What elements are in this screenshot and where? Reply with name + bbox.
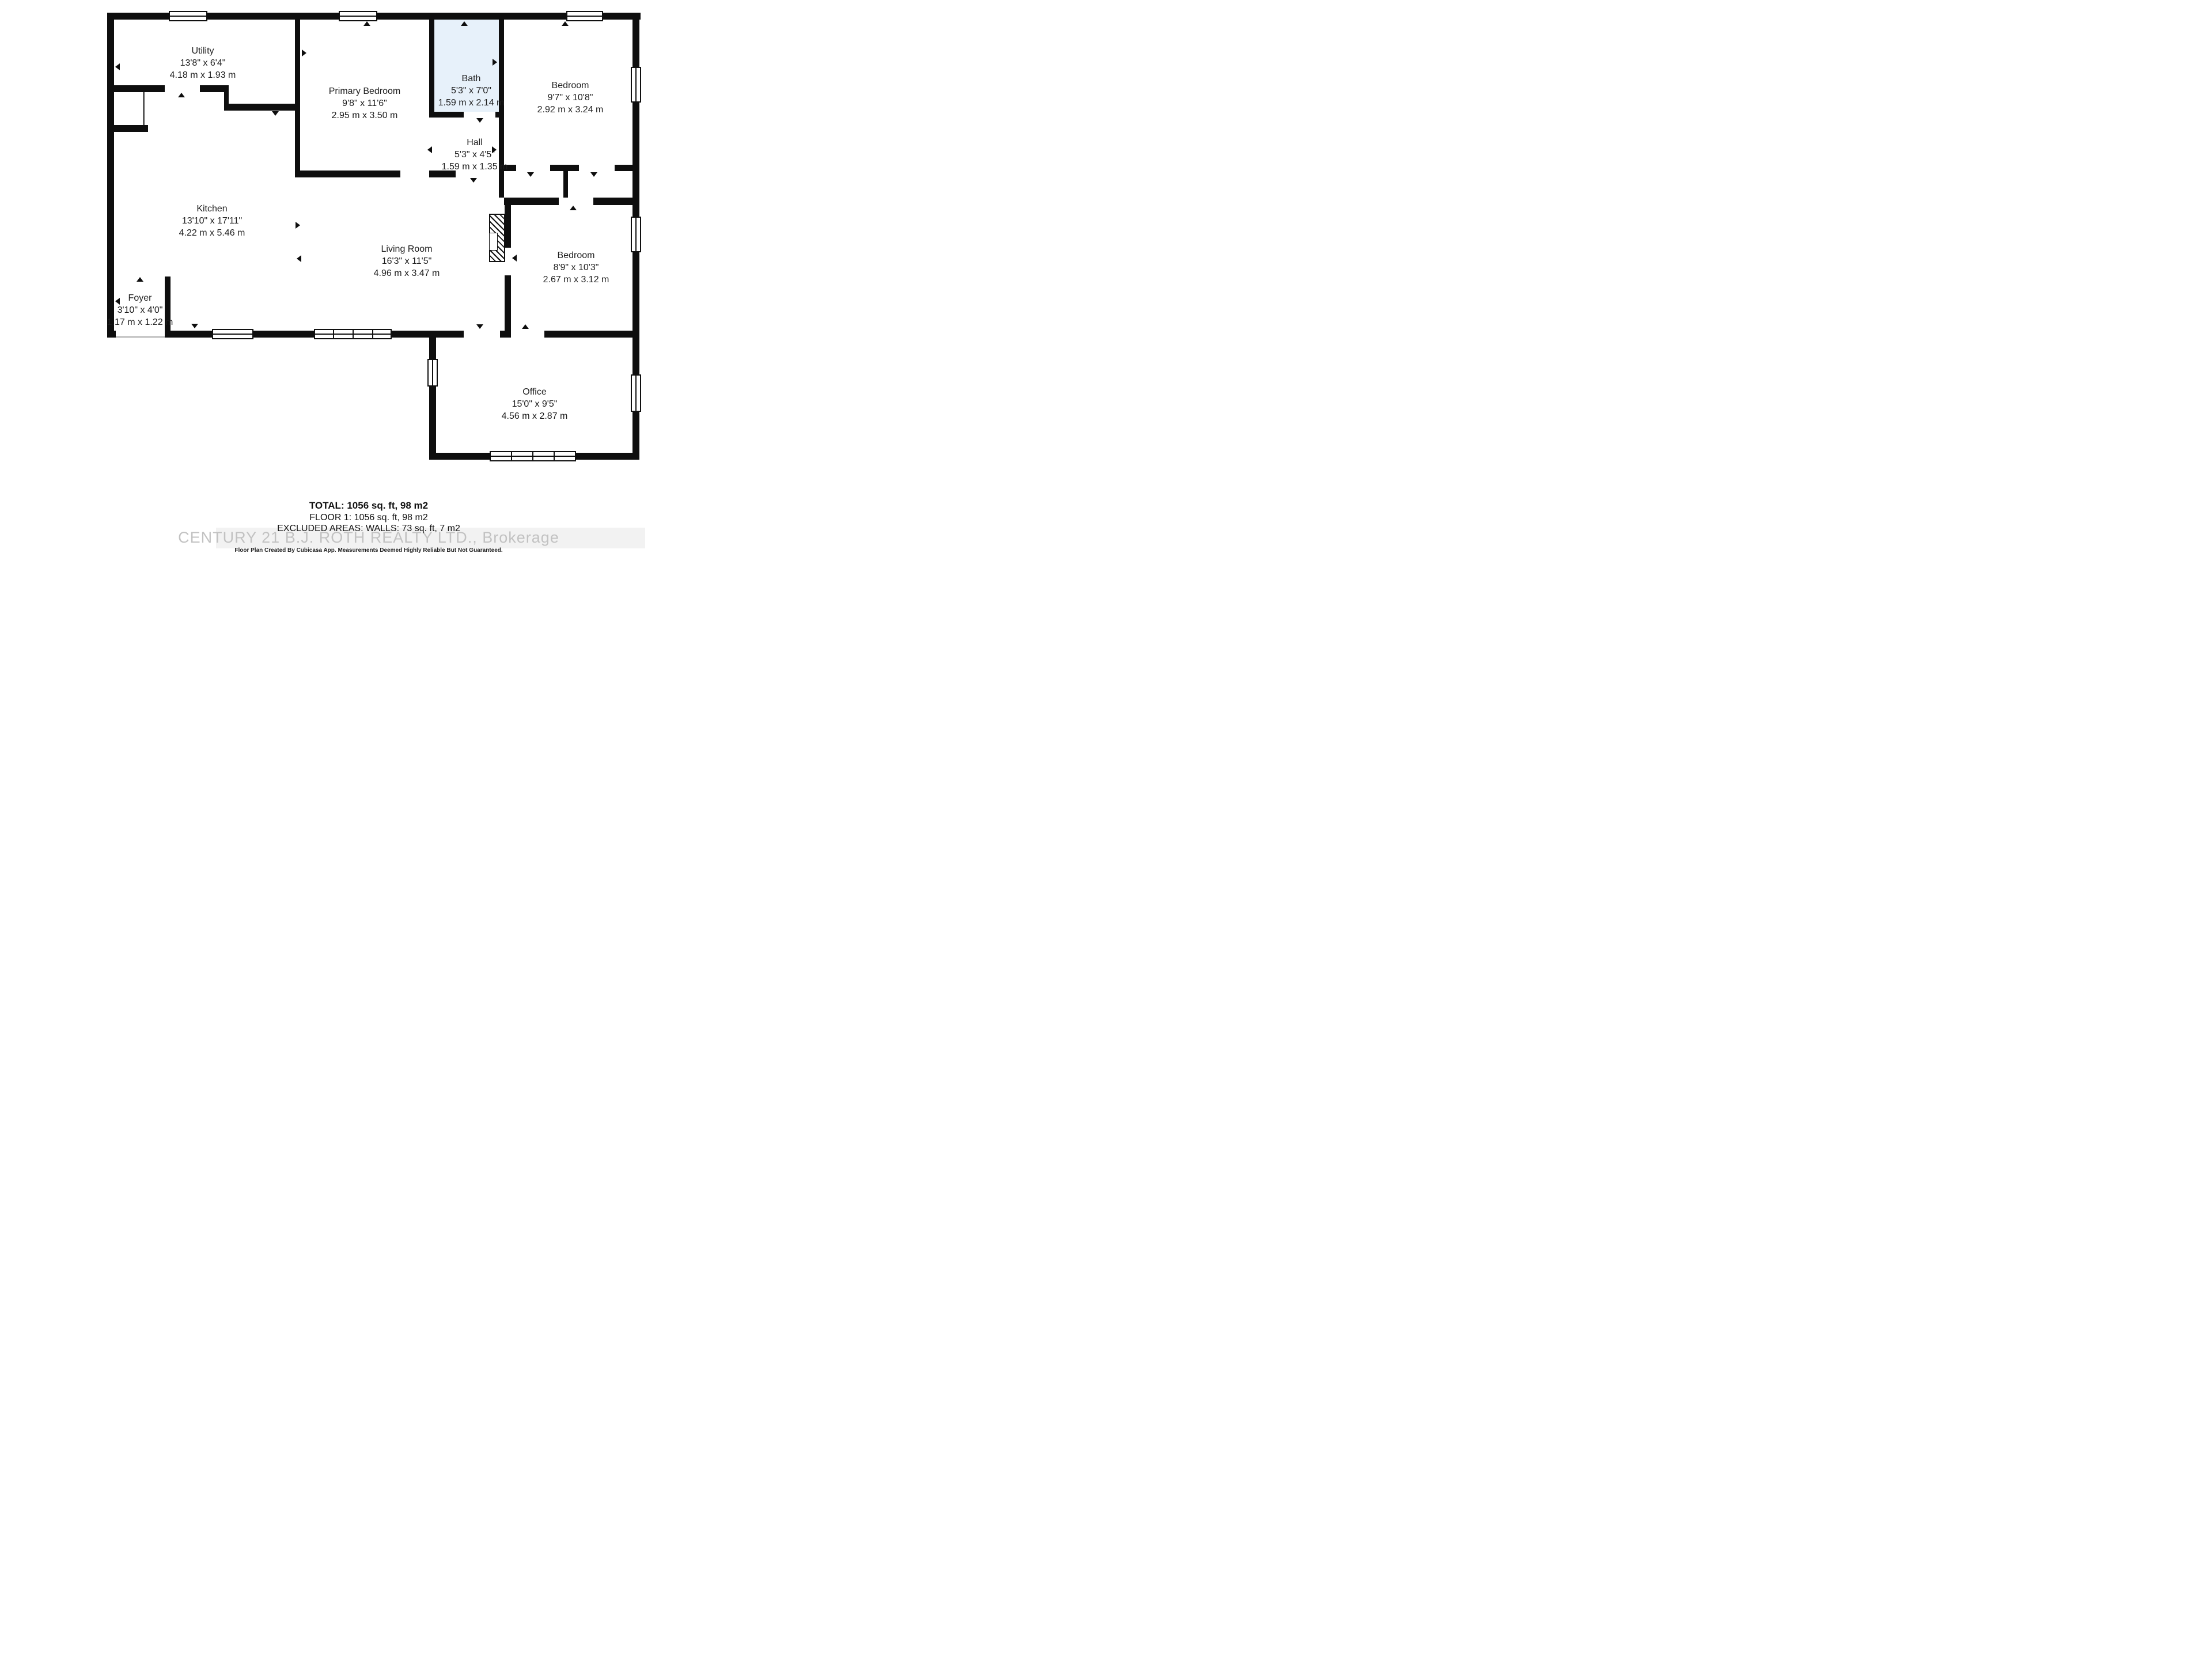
wall-closet-left-bottom: [114, 125, 148, 132]
room-label-bedroom-right: Bedroom 8'9" x 10'3" 2.67 m x 3.12 m: [543, 249, 609, 286]
wall-closet-left-side: [143, 92, 145, 125]
window-mullion: [333, 329, 334, 339]
door-marker-closet-right-icon: [590, 172, 597, 177]
wall-closet-bottom-a: [504, 198, 559, 205]
wall-utility-primary-divider: [295, 20, 300, 176]
wall-bedroom-r-left-a: [505, 205, 511, 248]
room-dim-m: 4.22 m x 5.46 m: [179, 227, 245, 239]
room-dim-ft: 13'8" x 6'4": [170, 57, 236, 69]
room-dim-m: 1.59 m x 2.14 m: [438, 97, 505, 109]
wall-closet-bottom-b: [593, 198, 632, 205]
wall-bedroom-tr-bottom-b: [550, 165, 579, 171]
room-name: Bath: [438, 73, 505, 85]
room-dim-m: 4.96 m x 3.47 m: [374, 267, 440, 279]
floor-plan-canvas: Utility 13'8" x 6'4" 4.18 m x 1.93 m Pri…: [0, 0, 737, 553]
flow-marker-living-icon: [297, 255, 301, 262]
door-marker-closet-left-icon: [527, 172, 534, 177]
window-bedroom-tr-right: [631, 67, 641, 103]
wall-exterior-left: [107, 13, 114, 338]
door-marker-hall-left-icon: [427, 146, 432, 153]
room-name: Kitchen: [179, 203, 245, 215]
room-dim-m: 2.67 m x 3.12 m: [543, 274, 609, 286]
room-dim-ft: 5'3" x 7'0": [438, 85, 505, 97]
wall-office-top-c: [544, 331, 639, 338]
room-dim-m: 1.59 m x 1.35 m: [442, 161, 508, 173]
room-dim-ft: 5'3" x 4'5": [442, 149, 508, 161]
wall-bath-left: [429, 20, 434, 118]
room-name: Living Room: [374, 243, 440, 255]
door-marker-foyer-icon: [137, 277, 143, 282]
door-marker-primary-icon: [302, 50, 306, 56]
door-marker-primary-top-icon: [363, 21, 370, 26]
room-dim-m: 2.92 m x 3.24 m: [537, 104, 604, 116]
door-marker-hall-right-icon: [492, 146, 497, 153]
room-name: Primary Bedroom: [329, 85, 400, 97]
window-kitchen-bottom: [212, 329, 253, 339]
window-mullion: [532, 451, 533, 461]
door-marker-hall-bottom-icon: [470, 178, 477, 183]
room-dim-ft: 16'3" x 11'5": [374, 255, 440, 267]
wall-bath-bottom-a: [429, 112, 464, 118]
room-dim-ft: 9'8" x 11'6": [329, 97, 400, 109]
room-dim-ft: 8'9" x 10'3": [543, 262, 609, 274]
room-dim-m: 4.18 m x 1.93 m: [170, 69, 236, 81]
room-dim-ft: 13'10" x 17'11": [179, 215, 245, 227]
flow-marker-kitchen-icon: [296, 222, 300, 229]
window-bedroom-tr-top: [566, 11, 603, 21]
door-marker-bedroom-tr-top-icon: [562, 21, 569, 26]
door-marker-bedroom-r-bottom-icon: [522, 324, 529, 329]
window-bedroom-r-right: [631, 217, 641, 252]
door-marker-bath-right-icon: [493, 59, 497, 66]
room-label-bath: Bath 5'3" x 7'0" 1.59 m x 2.14 m: [438, 73, 505, 109]
room-name: Office: [502, 386, 568, 398]
window-mullion: [353, 329, 354, 339]
room-dim-m: 1.17 m x 1.22 m: [107, 316, 173, 328]
window-mullion: [554, 451, 555, 461]
wall-bottom-c: [253, 331, 314, 338]
window-office-left: [427, 359, 438, 387]
door-marker-bedroom-r-left-icon: [512, 255, 517, 262]
window-office-right: [631, 374, 641, 412]
room-dim-m: 2.95 m x 3.50 m: [329, 109, 400, 122]
room-label-hall: Hall 5'3" x 4'5" 1.59 m x 1.35 m: [442, 137, 508, 173]
wall-bottom-b: [165, 331, 212, 338]
floor1-area-text: FLOOR 1: 1056 sq. ft, 98 m2: [0, 513, 737, 523]
fireplace-notch: [489, 233, 498, 251]
wall-bottom-a: [107, 331, 116, 338]
door-marker-utility-left-icon: [115, 63, 120, 70]
window-primary-top: [339, 11, 377, 21]
window-mullion: [372, 329, 373, 339]
room-label-office: Office 15'0" x 9'5" 4.56 m x 2.87 m: [502, 386, 568, 422]
room-dim-ft: 15'0" x 9'5": [502, 398, 568, 410]
door-marker-front-icon: [191, 324, 198, 328]
room-dim-ft: 3'10" x 4'0": [107, 304, 173, 316]
wall-office-top-a: [436, 331, 464, 338]
door-marker-office-icon: [476, 324, 483, 329]
wall-primary-bottom: [295, 171, 400, 177]
room-name: Utility: [170, 45, 236, 57]
door-marker-utility-icon: [178, 93, 185, 97]
excluded-areas-text: EXCLUDED AREAS: WALLS: 73 sq. ft, 7 m2: [0, 524, 737, 534]
room-dim-m: 4.56 m x 2.87 m: [502, 410, 568, 422]
wall-bedroom-r-left-b: [505, 275, 511, 338]
door-marker-bedroom-r-top-icon: [570, 206, 577, 210]
wall-bedroom-tr-bottom-c: [615, 165, 632, 171]
room-label-utility: Utility 13'8" x 6'4" 4.18 m x 1.93 m: [170, 45, 236, 81]
room-name: Hall: [442, 137, 508, 149]
wall-utility-bottom-a: [114, 85, 165, 92]
wall-office-left: [429, 331, 436, 460]
disclaimer-text: Floor Plan Created By Cubicasa App. Meas…: [0, 547, 737, 553]
door-marker-bath-door-icon: [476, 118, 483, 123]
room-name: Bedroom: [537, 79, 604, 92]
room-dim-ft: 9'7" x 10'8": [537, 92, 604, 104]
total-area-text: TOTAL: 1056 sq. ft, 98 m2: [0, 500, 737, 512]
window-utility-top: [169, 11, 207, 21]
door-marker-foyer-left-icon: [115, 298, 120, 305]
front-door-threshold: [116, 336, 165, 338]
room-label-living-room: Living Room 16'3" x 11'5" 4.96 m x 3.47 …: [374, 243, 440, 279]
door-marker-bath-top-icon: [461, 21, 468, 26]
window-mullion: [511, 451, 512, 461]
wall-utility-lower: [224, 104, 295, 111]
door-marker-utility-lower-icon: [272, 111, 279, 116]
room-label-kitchen: Kitchen 13'10" x 17'11" 4.22 m x 5.46 m: [179, 203, 245, 239]
room-name: Bedroom: [543, 249, 609, 262]
wall-closet-divider: [563, 171, 568, 198]
room-label-primary-bedroom: Primary Bedroom 9'8" x 11'6" 2.95 m x 3.…: [329, 85, 400, 122]
room-label-bedroom-top-right: Bedroom 9'7" x 10'8" 2.92 m x 3.24 m: [537, 79, 604, 116]
